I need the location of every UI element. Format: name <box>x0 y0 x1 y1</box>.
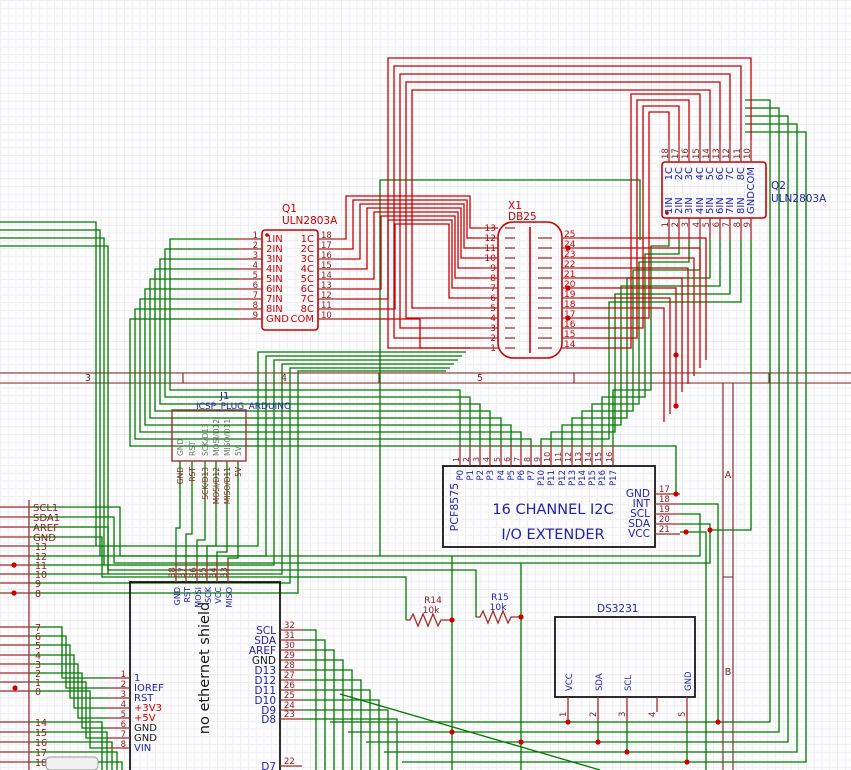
pin-number: 1 <box>661 222 671 227</box>
pin-number: 1 <box>559 712 569 717</box>
junction-dot <box>673 352 678 357</box>
pin-number: 6 <box>503 457 512 462</box>
pin-number: 38 <box>168 567 178 578</box>
pin-number: 5 <box>702 222 712 227</box>
net-label: MISO/D11 <box>223 467 232 504</box>
pin-number: 13 <box>712 148 722 159</box>
pin-label: GND <box>173 587 182 605</box>
junction-dot <box>518 739 523 744</box>
pin-label: D8 <box>261 714 276 726</box>
pin-number: 25 <box>564 230 575 240</box>
pin-number: 1 <box>452 457 461 462</box>
pin-label: P1 <box>466 470 476 481</box>
pin-number: 6 <box>490 294 496 304</box>
part-name: PCF8575 <box>448 483 461 532</box>
pin-number: 20 <box>659 515 670 525</box>
schematic-sheet: 3 4 5 A B <box>0 0 851 770</box>
pin-label: SDA <box>595 673 605 691</box>
pin-number: 26 <box>284 681 295 691</box>
junction-dot <box>715 719 720 724</box>
pin-number: 9 <box>490 264 496 274</box>
pin-label: VCC <box>628 528 650 540</box>
junction-dot <box>449 617 454 622</box>
pin-label: COM <box>746 167 757 190</box>
pin-number: 5 <box>678 712 688 717</box>
pin-number: 12 <box>564 452 573 462</box>
pin-number: 2 <box>253 241 258 251</box>
pin-number: 0 <box>35 687 41 698</box>
pin-number: 11 <box>554 452 563 462</box>
part-value: ULN2803A <box>282 215 338 227</box>
wire <box>343 319 470 348</box>
wire <box>135 309 531 444</box>
pin-label: RST <box>183 587 192 603</box>
net-label: 5V <box>234 466 243 477</box>
pin-label: P3 <box>486 470 496 481</box>
pin-number: 14 <box>584 452 593 462</box>
pin-number: 16 <box>605 452 614 462</box>
shield-left-pins <box>108 678 130 748</box>
ref-designator: Q2 <box>771 180 786 192</box>
pin-number: 4 <box>482 457 491 462</box>
pin-label: GND <box>266 314 289 325</box>
pin-number: 10 <box>543 452 552 462</box>
junction-dot <box>565 719 570 724</box>
pin-number: 7 <box>490 284 496 294</box>
pin-number: 36 <box>189 567 199 578</box>
pin-number: 18 <box>564 300 576 310</box>
pin-number: 8 <box>733 222 743 227</box>
junction-dot <box>673 491 678 496</box>
junction-dot <box>12 685 17 690</box>
pin-number: 9 <box>253 311 258 321</box>
pin-number: 4 <box>490 314 496 324</box>
net-label: MOSI/D12 <box>212 467 221 504</box>
pin-label: SCK/D13 <box>201 423 210 456</box>
junction-dot <box>673 403 678 408</box>
pin-label: P0 <box>456 470 466 481</box>
frame-row-label: B <box>725 667 732 678</box>
pin-label: 3C <box>684 167 695 180</box>
pin-number: 11 <box>321 301 332 311</box>
junction-dot <box>565 245 570 250</box>
pin-number: 30 <box>284 641 295 651</box>
component-ds3231[interactable]: DS3231 VCC SDA SCL GND 1 2 3 4 5 <box>555 603 695 722</box>
part-value: DB25 <box>508 211 537 223</box>
pin-number: 3 <box>253 251 258 261</box>
pin-number: 16 <box>564 320 576 330</box>
component-shield[interactable]: no ethernet shield 38 37 36 35 34 33 GND… <box>108 560 302 770</box>
pin-label: P10 <box>537 470 547 486</box>
pin-number: 2 <box>462 457 471 462</box>
pin-label: P13 <box>568 470 578 486</box>
component-pcf8575[interactable]: PCF8575 16 CHANNEL I2C I/O EXTENDER 1 2 … <box>443 444 680 547</box>
junction-dot <box>565 285 570 290</box>
pin-number: 22 <box>284 757 295 767</box>
pin-number: 5 <box>121 710 126 720</box>
pin-number: 14 <box>702 148 712 159</box>
tooltip-artifact <box>46 757 98 770</box>
pin-number: 12 <box>321 291 332 301</box>
pin-label: VIN <box>134 743 151 754</box>
pin-number: 17 <box>671 148 681 159</box>
pin-label: P17 <box>609 470 619 486</box>
pin-number: 18 <box>661 148 671 159</box>
pin-label: SCK <box>204 586 213 603</box>
junction-dot <box>624 749 629 754</box>
pin-number: 29 <box>284 651 295 661</box>
wire <box>580 288 676 406</box>
description-line1: 16 CHANNEL I2C <box>492 502 613 518</box>
pin-label: RST <box>188 441 197 456</box>
pin-label: GND <box>684 671 694 691</box>
pin-number: 9 <box>533 457 542 462</box>
pin-label: MISO/D11 <box>223 419 232 456</box>
lc-pins <box>0 507 29 762</box>
ds-pins <box>568 697 687 722</box>
pin-label: MISO <box>225 587 234 608</box>
pin-number: 15 <box>321 261 332 271</box>
pin-number: 19 <box>564 290 576 300</box>
pin-number: 15 <box>692 148 702 159</box>
component-x1[interactable]: X1 DB25 13 12 11 10 9 8 7 6 5 4 3 2 1 25… <box>480 200 580 358</box>
pin-number: 18 <box>659 495 670 505</box>
pin-number: 19 <box>659 505 670 515</box>
pin-number: 8 <box>35 589 41 600</box>
pin-number: 11 <box>733 148 743 159</box>
net-label: SCK/D13 <box>201 467 210 500</box>
pin-label: D7 <box>261 761 276 770</box>
junction-dot <box>449 729 454 734</box>
ref-designator: R14 <box>424 596 442 606</box>
component-r14[interactable]: R14 10k <box>406 596 452 626</box>
pin-number: 8 <box>523 457 532 462</box>
junction-dot <box>595 739 600 744</box>
pin-number: 2 <box>490 334 496 344</box>
pin-number: 14 <box>564 340 576 350</box>
pin-number: 8 <box>490 274 496 284</box>
pin-number: 2 <box>671 222 681 227</box>
pin-number: 31 <box>284 631 295 641</box>
pin-number: 33 <box>220 567 230 578</box>
pin-number: 5 <box>490 304 496 314</box>
pin-number: 17 <box>659 485 670 495</box>
junction-dot <box>565 315 570 320</box>
wire <box>580 106 679 328</box>
component-r15[interactable]: R15 10k <box>476 593 522 623</box>
pin-number: 1 <box>490 344 496 354</box>
pin-label: P15 <box>588 470 598 486</box>
pin-label: MOSI <box>194 587 203 608</box>
pin-number: 12 <box>485 234 496 244</box>
wire <box>680 532 706 770</box>
pin-label: 7IN <box>725 197 736 214</box>
pin-label: GND <box>746 191 757 214</box>
pin-number: 8 <box>121 740 126 750</box>
pin-number: 11 <box>485 244 496 254</box>
net-label: GND <box>176 467 185 484</box>
pin-number: 10 <box>485 254 497 264</box>
pin-label: P2 <box>476 470 486 481</box>
pin-label: P5 <box>507 470 517 481</box>
pin-number: 35 <box>199 567 209 578</box>
pin-number: 7 <box>253 291 258 301</box>
pin-label: P12 <box>558 470 568 486</box>
component-q2[interactable]: Q2 ULN2803A 18 17 16 15 14 13 12 11 10 1… <box>661 140 827 240</box>
pin-number: 2 <box>121 680 126 690</box>
pin-number: 3 <box>121 690 126 700</box>
pin-number: 9 <box>743 222 753 227</box>
wire <box>302 670 352 770</box>
pin-number: 4 <box>121 700 126 710</box>
pin-number: 5 <box>493 457 502 462</box>
pin-number: 23 <box>284 710 295 720</box>
part-name: no ethernet shield <box>197 602 213 734</box>
pin-number: 1 <box>253 231 258 241</box>
part-value: 10k <box>490 603 507 613</box>
pin-number: 25 <box>284 691 295 701</box>
junction-dots <box>11 245 720 764</box>
frame-col-label: 5 <box>477 373 483 384</box>
net-label: RST <box>188 467 197 482</box>
pin-number: 16 <box>681 148 691 159</box>
wire <box>580 112 669 318</box>
pin-number: 18 <box>35 758 47 769</box>
pin-number: 13 <box>321 281 332 291</box>
pin-number: 6 <box>712 222 722 227</box>
junction-dot <box>11 590 16 595</box>
part-value: 10k <box>423 606 440 616</box>
pin-number: 17 <box>321 241 332 251</box>
pin-label: SCL <box>624 675 634 691</box>
pin-number: 10 <box>321 311 332 321</box>
pin-number: 6 <box>253 281 258 291</box>
pin-number: 7 <box>513 457 522 462</box>
pin-number: 4 <box>692 222 702 227</box>
pin-number: 14 <box>321 271 332 281</box>
pin-number: 21 <box>564 270 575 280</box>
part-value: ICSP_PLUG_ARDUINO <box>196 402 291 412</box>
component-left-connector[interactable]: SCL1 SDA1 AREF GND 13 12 11 10 9 8 7 6 5… <box>0 500 60 770</box>
pin-number: 13 <box>485 224 496 234</box>
pin-label: P6 <box>517 470 527 481</box>
pin-label: P7 <box>527 470 537 481</box>
pin-number: 18 <box>321 231 332 241</box>
wire <box>29 360 458 565</box>
pin-label: 5V <box>234 445 243 456</box>
pin-number: 27 <box>284 671 295 681</box>
pin-number: 5 <box>253 271 258 281</box>
pin-number: 15 <box>594 452 603 462</box>
pin-number: 3 <box>618 712 628 717</box>
wire <box>302 660 343 770</box>
junction-dot <box>684 759 689 764</box>
pin-number: 3 <box>681 222 691 227</box>
ref-designator: R15 <box>491 593 509 603</box>
pin-number: 1 <box>121 670 126 680</box>
pin-number: 13 <box>574 452 583 462</box>
pin-number: 15 <box>564 330 575 340</box>
ref-designator: J1 <box>219 391 229 402</box>
junction-dot <box>683 529 688 534</box>
pin-number: 3 <box>490 324 496 334</box>
pin-number: 12 <box>722 148 732 159</box>
wire <box>302 690 370 770</box>
pin-label: VCC <box>214 587 223 604</box>
junction-dot <box>518 614 523 619</box>
component-q1[interactable]: Q1 ULN2803A 1 2 3 4 5 6 7 8 9 1IN 2IN 3I… <box>237 203 343 330</box>
pin-number: 21 <box>659 525 670 535</box>
pin-number: 34 <box>209 567 219 578</box>
pin-number: 6 <box>121 720 126 730</box>
pin-label: GND <box>176 439 185 456</box>
pin-number: 28 <box>284 661 295 671</box>
pin-number: 16 <box>321 251 332 261</box>
pin-label: P16 <box>598 470 608 486</box>
part-value: ULN2803A <box>771 193 827 205</box>
pin-label: 3IN <box>684 197 695 214</box>
pin-number: 3 <box>472 457 481 462</box>
pin-number: 10 <box>743 148 753 159</box>
schematic-canvas[interactable]: 3 4 5 A B <box>0 0 851 770</box>
pin-number: 7 <box>121 730 126 740</box>
pin-number: 4 <box>648 712 658 717</box>
pin-number: 4 <box>253 261 258 271</box>
pin-number: 32 <box>284 621 295 631</box>
ref-designator: Q1 <box>282 203 297 215</box>
pin-number: 7 <box>722 222 732 227</box>
wire <box>170 239 460 444</box>
junction-dot <box>707 527 712 532</box>
part-value: DS3231 <box>597 603 638 615</box>
pin-label: 7C <box>725 167 736 180</box>
frame-col-label: 3 <box>85 373 91 384</box>
pin-label: VCC <box>565 673 575 691</box>
pin-label: P11 <box>547 470 557 486</box>
description-line2: I/O EXTENDER <box>501 527 604 543</box>
pin-label: COM <box>291 314 314 325</box>
pin-number: 23 <box>564 250 575 260</box>
frame-row-label: A <box>725 470 732 481</box>
wire <box>0 222 96 546</box>
pin-number: 22 <box>564 260 575 270</box>
pin-number: 37 <box>178 567 188 578</box>
pin-number: 2 <box>589 712 599 717</box>
component-j1[interactable]: J1 ICSP_PLUG_ARDUINO GND RST SCK/D13 MOS… <box>172 391 291 504</box>
pin-label: MOSI/D12 <box>212 419 221 456</box>
junction-dot <box>11 562 16 567</box>
pin-label: P14 <box>578 470 588 486</box>
pin-label: P4 <box>497 470 507 481</box>
pin-number: 8 <box>253 301 258 311</box>
